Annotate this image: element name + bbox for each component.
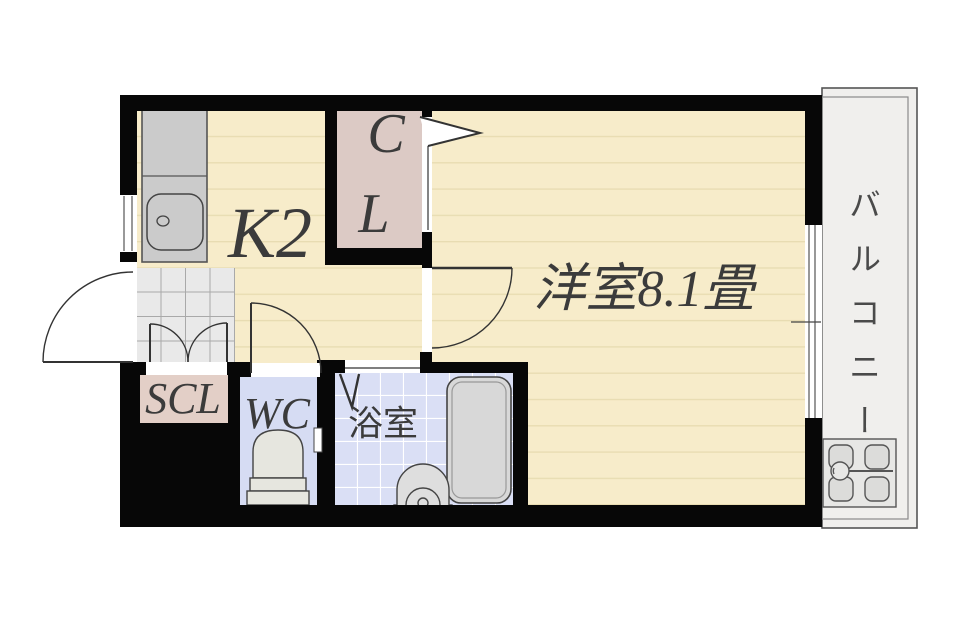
balcony-label: バルコニー — [846, 188, 880, 498]
closet-label: C L — [353, 106, 404, 242]
wall-top — [120, 95, 822, 111]
wall-wc-top-stub — [240, 362, 251, 377]
main-room-label: 洋室8.1畳 — [533, 264, 754, 316]
toilet-label: WC — [244, 392, 310, 436]
wall-bath-right — [513, 373, 528, 505]
wall-closet-left — [325, 95, 337, 265]
wall-room-left-b — [422, 232, 432, 268]
wall-bath-top — [432, 362, 528, 373]
wall-wc-left — [228, 362, 240, 527]
wall-left-lower — [120, 362, 137, 527]
wall-right-upper — [805, 95, 822, 225]
wall-closet-bottom — [325, 248, 432, 265]
window-left — [120, 195, 137, 252]
bath-door-opening — [345, 360, 420, 373]
wall-bottom — [120, 505, 822, 527]
closet-label-line2: L — [358, 186, 389, 242]
wall-room-left-c — [420, 352, 432, 373]
entrance-opening — [120, 262, 137, 362]
wc-door-handle — [314, 428, 322, 452]
wall-left-mid — [120, 252, 137, 262]
wall-left-upper — [120, 95, 137, 195]
wall-right-lower — [805, 418, 822, 527]
floor-plan-drawing — [0, 0, 960, 622]
toilet-icon — [247, 430, 309, 505]
wall-room-left-a — [422, 95, 432, 117]
wc-door-opening — [251, 363, 320, 377]
room-door-opening — [422, 268, 432, 352]
kitchen-label: K2 — [228, 197, 312, 269]
closet-label-line1: C — [367, 106, 404, 162]
bathroom-label: 浴室 — [348, 407, 418, 442]
shoe-closet-label: SCL — [145, 377, 221, 421]
bathtub-icon — [447, 377, 511, 503]
kitchen-counter — [142, 103, 207, 262]
floor-plan-canvas: K2 C L 洋室8.1畳 SCL WC 浴室 バルコニー — [0, 0, 960, 622]
